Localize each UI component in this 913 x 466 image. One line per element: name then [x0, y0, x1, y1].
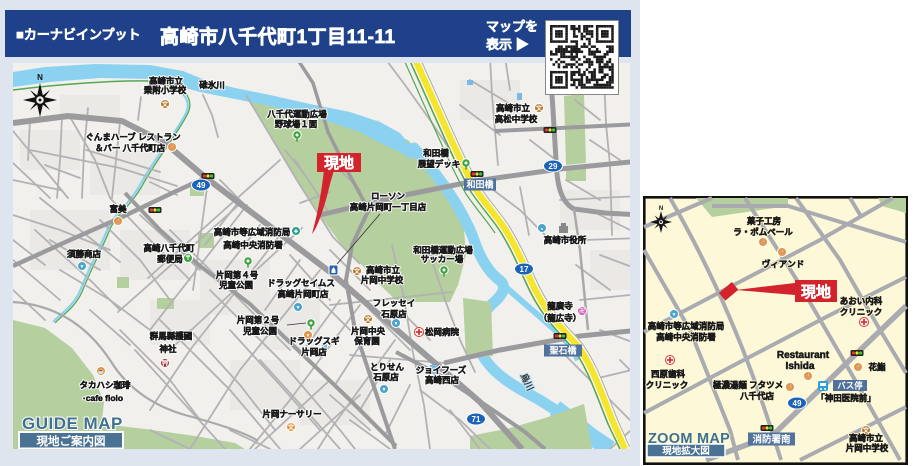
svg-text:文: 文	[161, 99, 169, 108]
svg-text:石原店: 石原店	[380, 309, 407, 319]
svg-text:現地拡大図: 現地拡大図	[662, 445, 710, 457]
svg-text:野球場１面: 野球場１面	[275, 119, 318, 129]
svg-text:🍴: 🍴	[779, 249, 786, 256]
svg-text:片岡ナーサリー: 片岡ナーサリー	[262, 409, 321, 419]
svg-text:高崎西店: 高崎西店	[425, 375, 460, 385]
svg-text:高崎市立: 高崎市立	[849, 433, 884, 443]
svg-text:群馬縣護國: 群馬縣護國	[149, 331, 193, 341]
svg-text:片岡中学校: 片岡中学校	[846, 443, 889, 453]
svg-text:▼: ▼	[672, 312, 677, 318]
svg-text:ローソン: ローソン	[371, 191, 406, 201]
svg-text:▼: ▼	[382, 387, 387, 393]
svg-text:クリニック: クリニック	[646, 380, 689, 390]
svg-text:ドラッグセイムス: ドラッグセイムス	[267, 278, 335, 288]
svg-text:＆バー 八千代町店: ＆バー 八千代町店	[95, 143, 166, 153]
svg-text:保育園: 保育園	[353, 336, 380, 346]
svg-text:🍴: 🍴	[805, 373, 812, 380]
svg-text:▼: ▼	[394, 321, 399, 327]
svg-text:八千代運動広場: 八千代運動広場	[266, 109, 327, 119]
svg-text:▼: ▼	[80, 264, 85, 270]
svg-text:高崎市等広域消防局: 高崎市等広域消防局	[214, 227, 291, 237]
svg-text:17: 17	[520, 265, 529, 274]
svg-text:龍廣寺: 龍廣寺	[547, 301, 573, 311]
svg-text:高崎中央消防署: 高崎中央消防署	[223, 240, 283, 250]
svg-text:ジョイフーズ: ジョイフーズ	[416, 365, 467, 375]
svg-text:児童公園: 児童公園	[218, 280, 253, 290]
svg-text:Ishida: Ishida	[786, 361, 815, 372]
svg-text:あおい内科: あおい内科	[840, 296, 883, 306]
svg-text:🍴: 🍴	[115, 218, 122, 225]
svg-text:サッカー場: サッカー場	[421, 254, 464, 264]
svg-text:和田橋: 和田橋	[423, 148, 449, 158]
svg-text:極濃湯麺 フタツメ: 極濃湯麺 フタツメ	[712, 380, 783, 390]
svg-text:とりせん: とりせん	[370, 362, 405, 372]
svg-text:高崎八千代町: 高崎八千代町	[143, 243, 195, 253]
svg-text:高崎市等広域消防局: 高崎市等広域消防局	[648, 321, 725, 331]
svg-text:🍴: 🍴	[169, 144, 176, 151]
svg-text:〒: 〒	[185, 255, 191, 262]
svg-text:碓氷川: 碓氷川	[199, 80, 225, 90]
svg-text:高崎市立: 高崎市立	[496, 103, 531, 113]
svg-text:文: 文	[353, 266, 361, 275]
svg-text:ラ・ポムベール: ラ・ポムベール	[733, 227, 793, 237]
svg-text:高崎市立: 高崎市立	[366, 265, 401, 275]
svg-text:🍴: 🍴	[787, 384, 794, 391]
svg-text:文: 文	[535, 103, 543, 112]
svg-text:（龍広寺）: （龍広寺）	[539, 313, 582, 323]
svg-text:文: 文	[364, 314, 372, 323]
svg-text:フレッセイ: フレッセイ	[373, 298, 416, 308]
svg-text:49: 49	[197, 181, 206, 190]
svg-text:消防署南: 消防署南	[752, 434, 791, 446]
svg-text:⛩: ⛩	[160, 359, 169, 367]
svg-text:高崎片岡町店: 高崎片岡町店	[277, 289, 329, 299]
svg-text:高崎中央消防署: 高崎中央消防署	[656, 332, 716, 342]
svg-text:須藤商店: 須藤商店	[66, 249, 102, 259]
svg-text:聖石橋: 聖石橋	[549, 345, 577, 356]
svg-text:菓子工房: 菓子工房	[746, 216, 781, 226]
svg-text:片岡中央: 片岡中央	[351, 326, 386, 336]
svg-text:タカハシ珈琲: タカハシ珈琲	[79, 380, 131, 390]
svg-text:神社: 神社	[159, 344, 177, 354]
svg-text:71: 71	[472, 415, 481, 424]
svg-text:🍴: 🍴	[760, 239, 767, 246]
svg-text:八千代店: 八千代店	[739, 391, 775, 401]
svg-text:ぐんまハーブ レストラン: ぐんまハーブ レストラン	[85, 132, 181, 142]
svg-text:49: 49	[793, 399, 802, 408]
svg-text:·cafe fiolo: ·cafe fiolo	[83, 393, 123, 403]
svg-text:片岡第４号: 片岡第４号	[216, 270, 259, 280]
svg-text:高崎片岡町一丁目店: 高崎片岡町一丁目店	[350, 202, 427, 212]
svg-text:ヴィアンド: ヴィアンド	[762, 259, 805, 269]
svg-text:片岡第２号: 片岡第２号	[237, 315, 280, 325]
svg-text:☕: ☕	[98, 367, 105, 375]
svg-text:ドラッグスギ: ドラッグスギ	[288, 336, 340, 346]
svg-text:29: 29	[549, 162, 558, 171]
svg-text:片岡中学校: 片岡中学校	[361, 275, 404, 285]
svg-text:西原歯科: 西原歯科	[651, 369, 686, 379]
svg-text:松岡病院: 松岡病院	[425, 327, 460, 337]
svg-text:バス停: バス停	[837, 381, 863, 391]
svg-text:花鮨: 花鮨	[868, 362, 886, 372]
svg-text:クリニック: クリニック	[840, 307, 883, 317]
svg-text:現地: 現地	[801, 283, 831, 301]
svg-text:「神田医院前」: 「神田医院前」	[816, 393, 876, 403]
svg-text:Restaurant: Restaurant	[777, 350, 830, 361]
svg-text:▼: ▼	[296, 305, 301, 311]
svg-text:高崎市役所: 高崎市役所	[544, 235, 587, 245]
svg-text:文: 文	[287, 422, 295, 431]
svg-text:片岡店: 片岡店	[301, 347, 327, 357]
svg-text:現地ご案内図: 現地ご案内図	[37, 434, 106, 448]
svg-text:富美: 富美	[109, 204, 127, 214]
svg-text:現地: 現地	[324, 154, 354, 172]
svg-text:郵便局: 郵便局	[157, 254, 183, 264]
svg-text:和田橋: 和田橋	[465, 179, 494, 190]
svg-text:児童公園: 児童公園	[242, 326, 277, 336]
svg-text:高松中学校: 高松中学校	[495, 114, 538, 124]
svg-text:展望デッキ: 展望デッキ	[417, 159, 461, 169]
svg-text:N: N	[37, 73, 43, 82]
svg-text:石原店: 石原店	[372, 372, 399, 382]
svg-text:🍴: 🍴	[855, 364, 862, 371]
svg-text:GUIDE MAP: GUIDE MAP	[22, 414, 123, 433]
svg-text:乗附小学校: 乗附小学校	[143, 85, 187, 95]
